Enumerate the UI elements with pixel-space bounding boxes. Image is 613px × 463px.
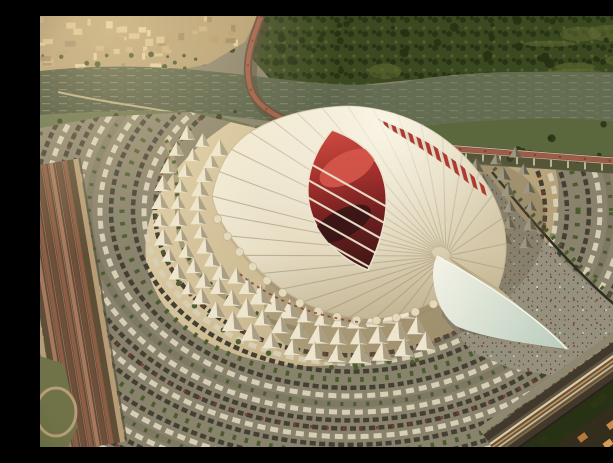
scene-canvas [40,16,613,447]
vignette [40,16,613,447]
stadium-aerial-render [40,16,613,447]
